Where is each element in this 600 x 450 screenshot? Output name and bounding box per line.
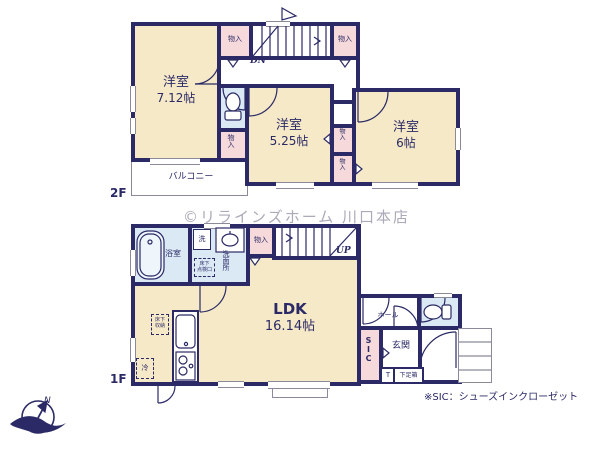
room-6-name: 洋室 — [393, 120, 419, 135]
washer-label: 洗 — [196, 235, 208, 244]
fridge-label: 冷 — [138, 364, 152, 373]
floorplan-canvas: バルコニー 洋室 7.12帖 洋室 5.25帖 洋室 6帖 物入 物入 物入 物… — [0, 0, 600, 450]
ldk-name: LDK — [273, 300, 307, 318]
closet-label: 物入 — [227, 134, 234, 148]
window — [266, 21, 290, 27]
floor1-label: 1F — [110, 372, 127, 386]
shoebox-t-label: T — [382, 371, 394, 380]
floor2-label: 2F — [110, 186, 127, 200]
window-sliding-door — [268, 381, 330, 389]
bath-label: 浴室 — [158, 249, 188, 259]
floor-storage-line2: 収納 — [155, 323, 165, 329]
inspection-label: 床下 点検口 — [195, 261, 214, 274]
stairs-up-label: UP — [336, 246, 351, 257]
room-712-label: 洋室 7.12帖 — [141, 75, 211, 106]
room-712-name: 洋室 — [163, 75, 189, 90]
window — [130, 118, 136, 134]
closet-label: 物入 — [221, 35, 249, 44]
ldk-label: LDK 16.14帖 — [250, 300, 330, 335]
window — [218, 381, 244, 388]
room-6-label: 洋室 6帖 — [371, 120, 441, 151]
room-712-size: 7.12帖 — [141, 91, 211, 106]
stairs-2f — [249, 22, 334, 60]
stairs-down-label: DN — [250, 56, 266, 67]
window — [372, 182, 418, 189]
entrance-label: 玄関 — [382, 341, 420, 352]
room-6-size: 6帖 — [371, 136, 441, 151]
closet-label: 物入 — [332, 35, 358, 44]
shoebox-label: 下足箱 — [394, 372, 423, 380]
closet-label: 物入 — [250, 236, 272, 245]
balcony-label: バルコニー — [146, 172, 236, 183]
window — [130, 86, 136, 112]
window — [276, 182, 314, 189]
window — [434, 293, 452, 298]
entrance-doorway — [418, 326, 462, 384]
room-525-name: 洋室 — [276, 118, 302, 133]
ldk-size: 16.14帖 — [250, 319, 330, 335]
window — [455, 128, 461, 150]
room-525-label: 洋室 5.25帖 — [254, 118, 324, 149]
closet-label: 物入 — [338, 128, 344, 140]
inspection-line2: 点検口 — [197, 267, 212, 273]
compass-north-label: N — [44, 396, 51, 406]
washroom-label: 洗面所 — [222, 250, 229, 271]
window — [130, 338, 136, 362]
closet-label: 物入 — [338, 158, 344, 170]
window — [130, 250, 136, 276]
porch-steps — [458, 328, 492, 383]
kitchen-counter — [172, 310, 199, 383]
window-balcony-door — [150, 158, 200, 165]
hall-label: ホール — [366, 311, 410, 320]
floor-storage-label: 床下 収納 — [152, 317, 168, 330]
toilet-room-1f — [417, 294, 462, 330]
room-525-size: 5.25帖 — [254, 134, 324, 149]
sic-label: SIC — [364, 336, 372, 363]
compass-icon — [10, 401, 66, 433]
sic-note: ※SIC：シューズインクローゼット — [424, 388, 578, 403]
watermark: ©リラインズホーム 川口本店 — [183, 206, 410, 227]
vent-flag — [282, 8, 296, 20]
